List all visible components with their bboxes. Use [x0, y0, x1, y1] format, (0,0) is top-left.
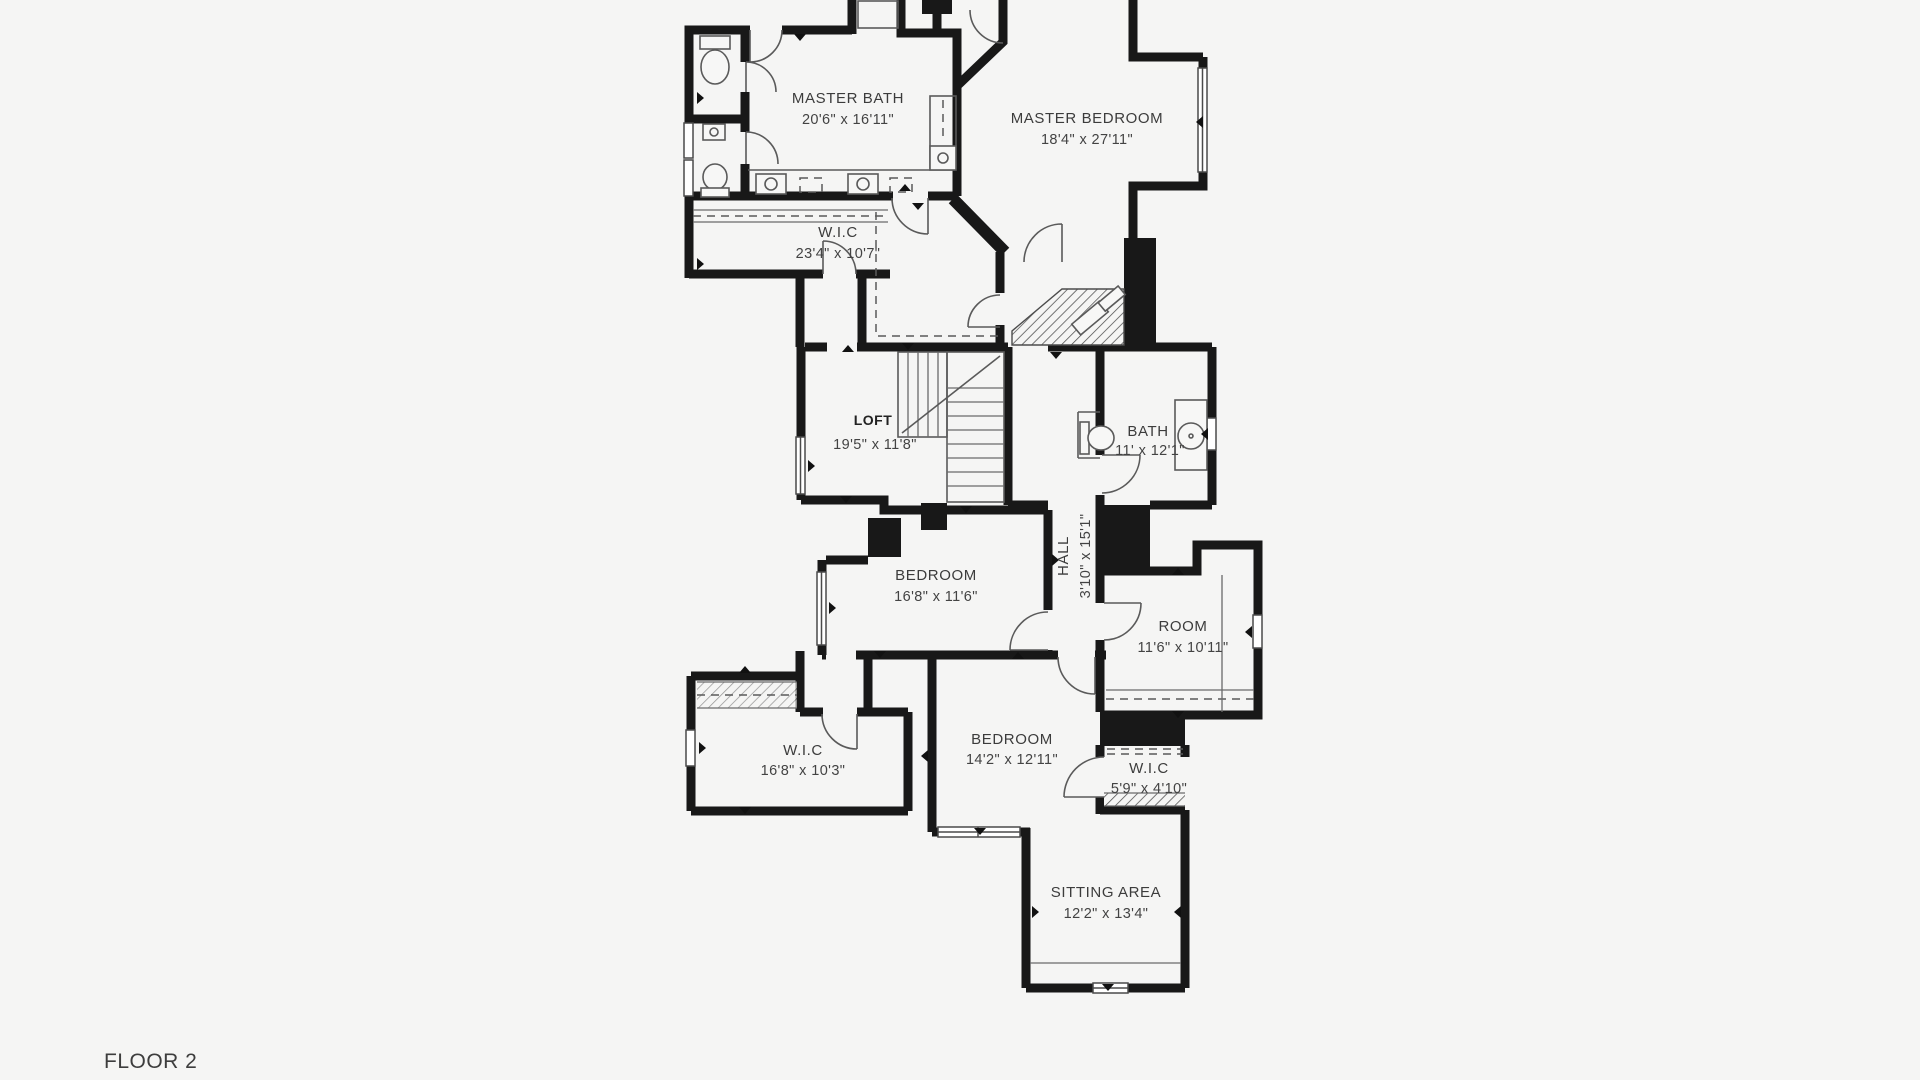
svg-text:BEDROOM: BEDROOM: [971, 731, 1053, 748]
door-arc: [970, 10, 1003, 43]
room-label-bedroom-14: BEDROOM 14'2" x 12'11": [966, 731, 1058, 768]
room-label-hall: HALL 3'10" x 15'1": [1055, 514, 1094, 599]
svg-text:W.I.C: W.I.C: [1129, 760, 1169, 777]
svg-text:20'6" x 16'11": 20'6" x 16'11": [802, 112, 894, 128]
room-label-loft: LOFT 19'5" x 11'8": [833, 412, 917, 453]
door-arc: [746, 62, 776, 92]
toilet: [1080, 422, 1114, 454]
svg-text:16'8" x 11'6": 16'8" x 11'6": [894, 589, 978, 605]
windows-layer: [684, 68, 1262, 993]
svg-text:12'2" x 13'4": 12'2" x 13'4": [1064, 906, 1149, 922]
window: [1253, 615, 1262, 648]
svg-text:18'4" x 27'11": 18'4" x 27'11": [1041, 132, 1133, 148]
svg-text:MASTER BEDROOM: MASTER BEDROOM: [1011, 110, 1164, 127]
fixtures-layer: [693, 1, 1254, 963]
svg-text:BEDROOM: BEDROOM: [895, 567, 977, 584]
room-label-master-bedroom: MASTER BEDROOM 18'4" x 27'11": [1011, 110, 1164, 148]
door-arc: [822, 714, 857, 749]
door-arc: [1010, 612, 1048, 650]
floor-plan-svg: MASTER BATH 20'6" x 16'11" MASTER BEDROO…: [0, 0, 1920, 1080]
svg-text:23'4" x 10'7": 23'4" x 10'7": [796, 246, 881, 262]
door-arc: [1064, 757, 1104, 797]
svg-text:14'2" x 12'11": 14'2" x 12'11": [966, 752, 1058, 768]
window: [817, 572, 826, 645]
svg-text:W.I.C: W.I.C: [818, 224, 858, 241]
svg-text:HALL: HALL: [1055, 536, 1072, 576]
room-label-wic-5: W.I.C 5'9" x 4'10": [1111, 760, 1187, 797]
door-arc: [1102, 455, 1140, 493]
room-label-wic-16: W.I.C 16'8" x 10'3": [761, 742, 846, 779]
door-arc: [1024, 224, 1062, 262]
sink: [930, 146, 956, 170]
room-label-wic-master: W.I.C 23'4" x 10'7": [796, 224, 881, 262]
window: [686, 730, 695, 766]
svg-text:16'8" x 10'3": 16'8" x 10'3": [761, 763, 846, 779]
sink: [848, 174, 878, 194]
svg-text:11' x 12'1": 11' x 12'1": [1115, 443, 1185, 459]
sink: [703, 124, 725, 140]
svg-text:ROOM: ROOM: [1158, 618, 1207, 635]
floor-plan-page: MASTER BATH 20'6" x 16'11" MASTER BEDROO…: [0, 0, 1920, 1080]
door-arc: [1058, 657, 1095, 694]
sink: [756, 174, 786, 194]
toilet: [701, 164, 729, 197]
door-arc: [750, 30, 782, 62]
svg-text:W.I.C: W.I.C: [783, 742, 823, 759]
toilet: [700, 36, 730, 84]
svg-text:LOFT: LOFT: [854, 412, 893, 428]
room-label-room: ROOM 11'6" x 10'11": [1137, 618, 1228, 656]
svg-text:11'6" x 10'11": 11'6" x 10'11": [1137, 640, 1228, 656]
window: [1207, 418, 1216, 450]
door-arc: [1104, 603, 1141, 640]
room-label-bedroom-16: BEDROOM 16'8" x 11'6": [894, 567, 978, 605]
window: [684, 123, 693, 196]
floor-label: FLOOR 2: [104, 1050, 197, 1073]
door-arc: [746, 132, 778, 164]
svg-text:5'9" x 4'10": 5'9" x 4'10": [1111, 781, 1187, 797]
door-arc: [968, 295, 1000, 327]
room-label-master-bath: MASTER BATH 20'6" x 16'11": [792, 90, 904, 128]
svg-text:SITTING AREA: SITTING AREA: [1051, 884, 1162, 901]
room-label-sitting-area: SITTING AREA 12'2" x 13'4": [1051, 884, 1162, 922]
svg-text:19'5" x 11'8": 19'5" x 11'8": [833, 437, 917, 453]
svg-text:BATH: BATH: [1127, 423, 1168, 440]
svg-text:MASTER BATH: MASTER BATH: [792, 90, 904, 107]
window: [796, 437, 805, 494]
svg-text:3'10" x 15'1": 3'10" x 15'1": [1078, 514, 1094, 599]
